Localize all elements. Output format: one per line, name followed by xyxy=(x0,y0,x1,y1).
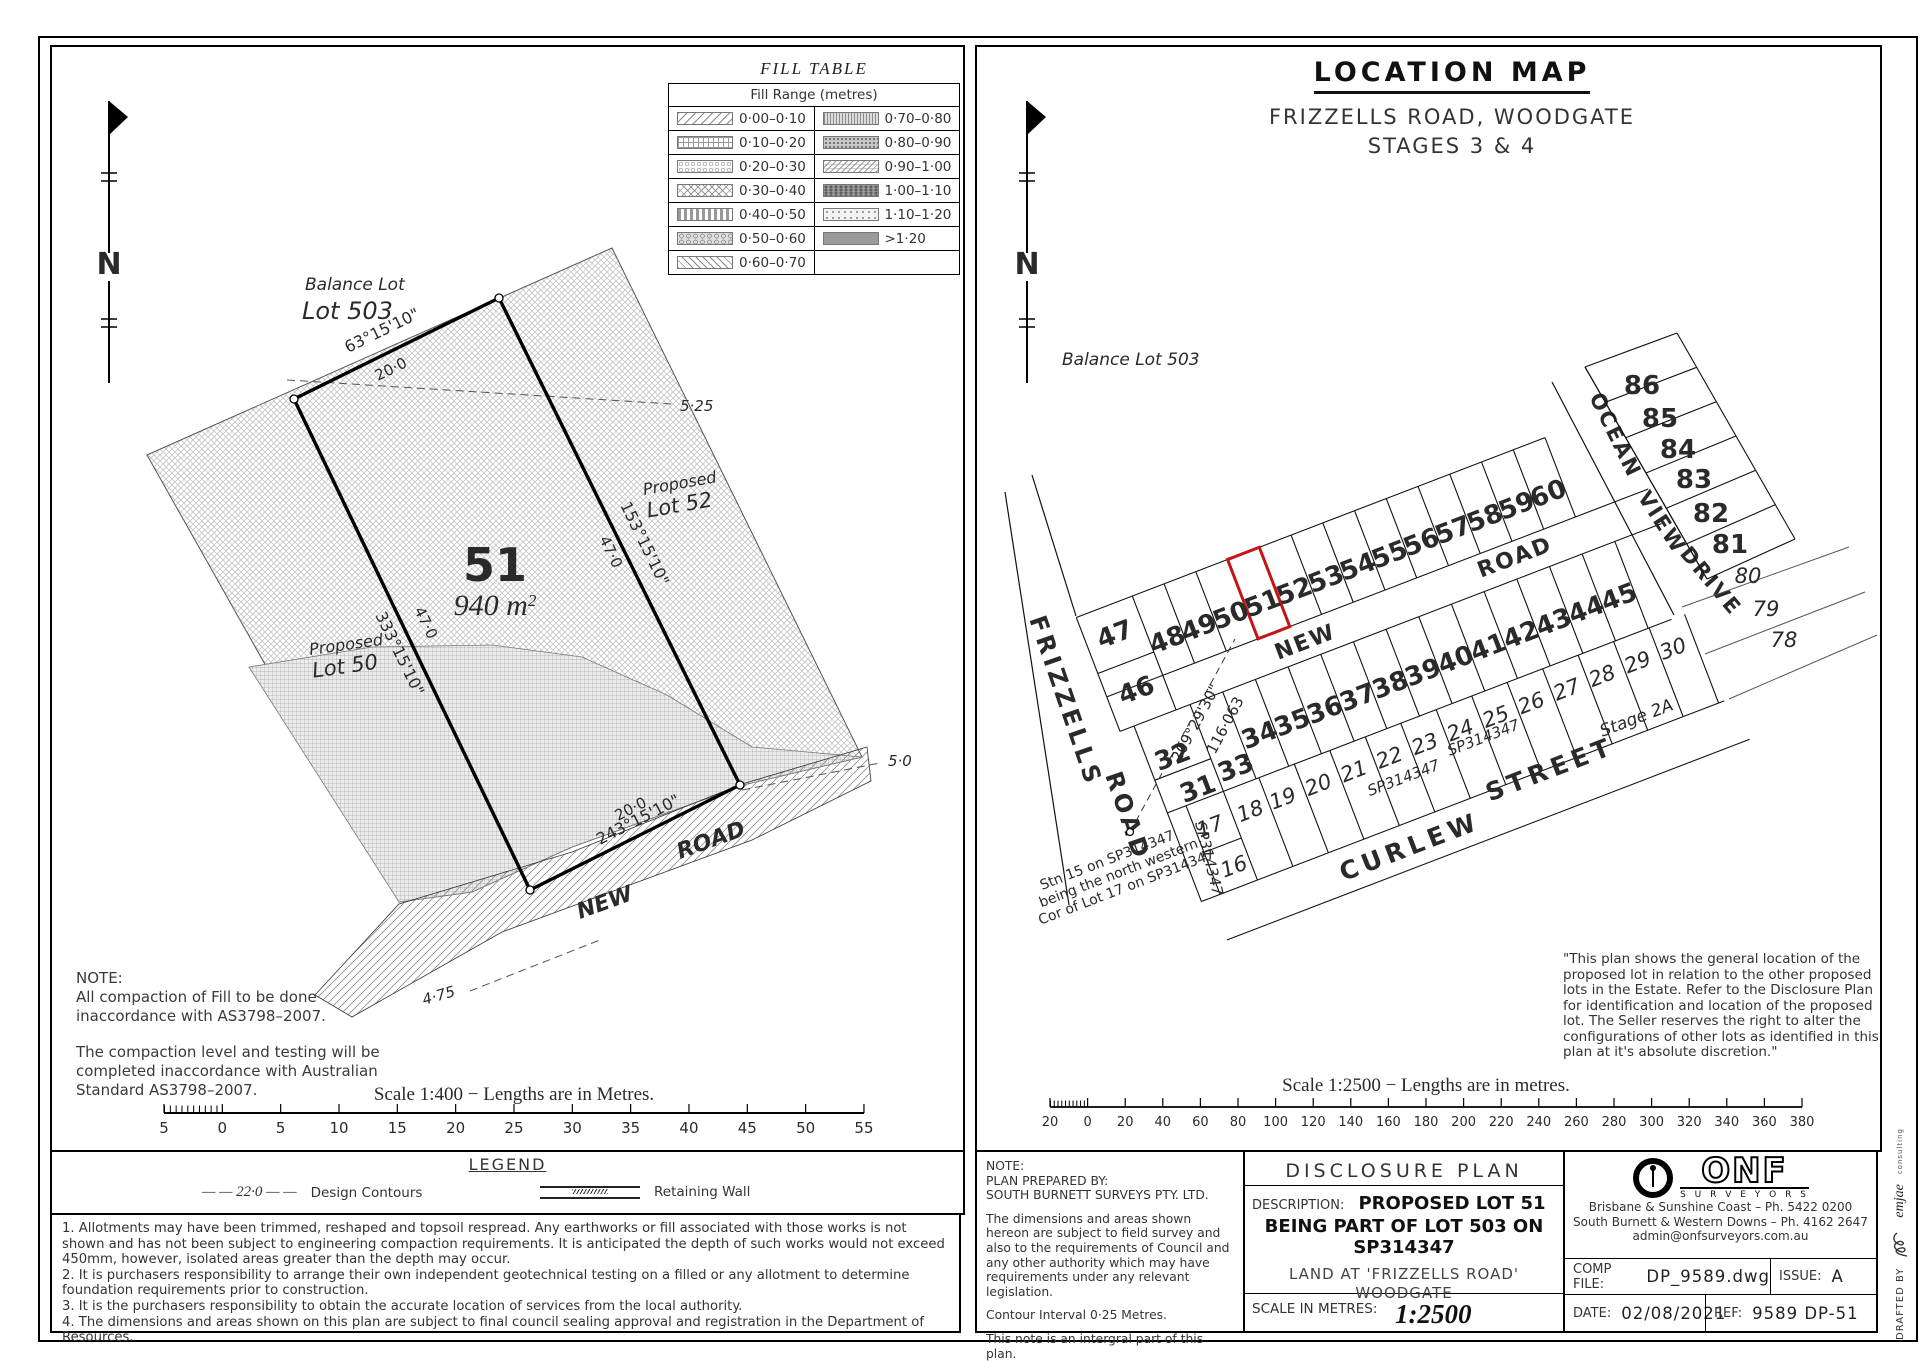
view-label: VIEW xyxy=(1633,487,1691,558)
svg-text:380: 380 xyxy=(1790,1115,1815,1130)
balance-lot-503-label: Balance Lot 503 xyxy=(1062,350,1200,370)
svg-text:35: 35 xyxy=(621,1119,640,1137)
north-arrow-flag xyxy=(1027,101,1046,135)
compaction-note: NOTE: All compaction of Fill to be done … xyxy=(76,969,380,1100)
svg-text:31: 31 xyxy=(1176,769,1221,810)
fill-table-row: 0·20–0·30 0·90–1·00 xyxy=(669,155,959,179)
scale-value: 1:2500 xyxy=(1395,1299,1472,1330)
svg-text:80: 80 xyxy=(1735,564,1762,588)
note-item: 3. It is the purchasers responsibility t… xyxy=(62,1299,949,1315)
fill-table-row: 0·00–0·10 0·70–0·80 xyxy=(669,107,959,131)
onf-name: ONF xyxy=(1701,1156,1788,1186)
legend-design-contours: — — 22·0 — — Design Contours xyxy=(202,1184,422,1201)
ocean-label: OCEAN xyxy=(1585,389,1647,482)
title-block-firm: ONF S U R V E Y O R S Brisbane & Sunshin… xyxy=(1565,1152,1876,1331)
scale-text-right: Scale 1:2500 − Lengths are in metres. xyxy=(1282,1075,1570,1096)
svg-text:140: 140 xyxy=(1338,1115,1363,1130)
north-letter: N xyxy=(96,247,121,282)
svg-text:220: 220 xyxy=(1489,1115,1514,1130)
land-at-line-1: LAND AT 'FRIZZELLS ROAD' xyxy=(1245,1265,1563,1283)
ref-label: REF: xyxy=(1714,1306,1742,1321)
svg-text:40: 40 xyxy=(679,1119,698,1137)
hatch-swatch-icon xyxy=(823,184,879,197)
emjae-consulting: consulting xyxy=(1896,1128,1904,1174)
street-label: STREET xyxy=(1482,732,1619,808)
drafted-by-margin: DRAFTED BY emjae consulting xyxy=(1886,1040,1914,1340)
location-map-subtitle-2: STAGES 3 & 4 xyxy=(1152,134,1752,158)
contour-label-525: 5·25 xyxy=(680,397,713,415)
scale-ticks-right: 2002040608010012014016018020022024026028… xyxy=(1042,1098,1815,1130)
svg-text:47: 47 xyxy=(1093,614,1138,655)
hatch-swatch-icon xyxy=(677,256,733,269)
svg-text:240: 240 xyxy=(1526,1115,1551,1130)
emjae-brand: emjae xyxy=(1892,1184,1908,1217)
location-map-header: LOCATION MAP FRIZZELLS ROAD, WOODGATE ST… xyxy=(1152,57,1752,158)
svg-text:120: 120 xyxy=(1301,1115,1326,1130)
svg-text:45: 45 xyxy=(738,1119,757,1137)
svg-text:280: 280 xyxy=(1602,1115,1627,1130)
hatch-swatch-icon xyxy=(823,112,879,125)
onf-logo-icon xyxy=(1632,1157,1674,1199)
onf-surveyors: S U R V E Y O R S xyxy=(1680,1187,1809,1200)
disclosure-quote: "This plan shows the general location of… xyxy=(1563,952,1883,1061)
contour-label-475: 4·75 xyxy=(420,982,457,1009)
svg-text:84: 84 xyxy=(1660,435,1696,465)
fill-table-row: 0·50–0·60 >1·20 xyxy=(669,227,959,251)
date-label: DATE: xyxy=(1573,1306,1611,1321)
svg-text:86: 86 xyxy=(1624,371,1660,401)
svg-text:5: 5 xyxy=(159,1119,169,1137)
comp-file-label: COMP FILE: xyxy=(1573,1262,1636,1292)
north-arrow-flag xyxy=(109,101,128,135)
hatch-swatch-icon xyxy=(823,160,879,173)
drafted-by-label: DRAFTED BY xyxy=(1895,1268,1906,1340)
hatch-swatch-icon xyxy=(823,136,879,149)
lot51-number: 51 xyxy=(463,538,527,592)
svg-text:0: 0 xyxy=(1083,1115,1091,1130)
firm-email: admin@onfsurveyors.com.au xyxy=(1565,1229,1876,1244)
title-block: NOTE: PLAN PREPARED BY: SOUTH BURNETT SU… xyxy=(975,1150,1878,1333)
fill-table: FILL TABLE Fill Range (metres) 0·00–0·10… xyxy=(668,59,960,275)
balance-lot-label-2: Lot 503 xyxy=(302,297,393,325)
svg-text:18: 18 xyxy=(1233,795,1267,827)
emjae-signature-icon xyxy=(1889,1228,1911,1258)
station-15-mark xyxy=(1127,829,1134,836)
svg-text:46: 46 xyxy=(1114,670,1159,711)
title-block-notes: NOTE: PLAN PREPARED BY: SOUTH BURNETT SU… xyxy=(977,1152,1245,1331)
fill-table-title: FILL TABLE xyxy=(668,59,960,79)
general-notes: 1. Allotments may have been trimmed, res… xyxy=(50,1213,961,1333)
ref-value: 9589 DP-51 xyxy=(1752,1304,1858,1323)
svg-text:50: 50 xyxy=(796,1119,815,1137)
new-road-label-1: NEW xyxy=(1271,619,1339,665)
svg-text:60: 60 xyxy=(1192,1115,1209,1130)
svg-text:360: 360 xyxy=(1752,1115,1777,1130)
hatch-swatch-icon xyxy=(677,184,733,197)
hatch-swatch-icon xyxy=(677,208,733,221)
issue-label: ISSUE: xyxy=(1779,1269,1821,1284)
svg-text:200: 200 xyxy=(1451,1115,1476,1130)
contour-label-50: 5·0 xyxy=(888,752,912,770)
svg-text:340: 340 xyxy=(1714,1115,1739,1130)
svg-text:81: 81 xyxy=(1712,530,1748,560)
svg-text:82: 82 xyxy=(1693,499,1729,529)
firm-address-1: Brisbane & Sunshine Coast – Ph. 5422 020… xyxy=(1565,1200,1876,1215)
svg-text:5: 5 xyxy=(276,1119,286,1137)
svg-text:260: 260 xyxy=(1564,1115,1589,1130)
lot51-area: 940 m2 xyxy=(454,589,537,622)
hatch-swatch-icon xyxy=(823,208,879,221)
svg-text:80: 80 xyxy=(1230,1115,1247,1130)
fill-table-row: 0·10–0·20 0·80–0·90 xyxy=(669,131,959,155)
svg-text:100: 100 xyxy=(1263,1115,1288,1130)
svg-text:25: 25 xyxy=(504,1119,523,1137)
svg-text:40: 40 xyxy=(1155,1115,1172,1130)
svg-text:20: 20 xyxy=(1117,1115,1134,1130)
svg-text:30: 30 xyxy=(563,1119,582,1137)
contour-475-line xyxy=(470,940,600,991)
legend-title: LEGEND xyxy=(52,1155,963,1174)
description-label: DESCRIPTION: xyxy=(1252,1198,1344,1213)
svg-text:10: 10 xyxy=(329,1119,348,1137)
description-line-2: BEING PART OF LOT 503 ON SP314347 xyxy=(1245,1216,1563,1258)
hatch-swatch-icon xyxy=(677,160,733,173)
scale-label: SCALE IN METRES: xyxy=(1252,1301,1377,1317)
svg-text:79: 79 xyxy=(1753,597,1780,621)
hatch-swatch-icon xyxy=(677,112,733,125)
svg-text:15: 15 xyxy=(388,1119,407,1137)
balance-lot-label-1: Balance Lot xyxy=(305,275,406,295)
note-item: 1. Allotments may have been trimmed, res… xyxy=(62,1221,949,1268)
hatch-swatch-icon xyxy=(677,232,733,245)
north-letter: N xyxy=(1014,247,1039,282)
lot-plan-panel: 5·25 5·0 4·75 63°15'10" 20·0 153°15'10" … xyxy=(50,45,965,1152)
retaining-wall-icon xyxy=(540,1186,640,1199)
contour-symbol: — — 22·0 — — xyxy=(202,1184,297,1201)
fill-table-row: 0·40–0·50 1·10–1·20 xyxy=(669,203,959,227)
comp-file-value: DP_9589.dwg xyxy=(1646,1267,1770,1286)
issue-value: A xyxy=(1831,1267,1843,1286)
legend-retaining-wall: Retaining Wall xyxy=(540,1184,750,1200)
fill-table-row: 0·30–0·40 1·00–1·10 xyxy=(669,179,959,203)
svg-text:180: 180 xyxy=(1414,1115,1439,1130)
svg-text:20: 20 xyxy=(446,1119,465,1137)
location-map-title: LOCATION MAP xyxy=(1314,57,1591,94)
frizzells-label: FRIZZELLS xyxy=(1023,612,1108,790)
svg-text:85: 85 xyxy=(1642,404,1678,434)
firm-address-2: South Burnett & Western Downs – Ph. 4162… xyxy=(1565,1215,1876,1230)
hatch-swatch-icon xyxy=(823,232,879,245)
fill-table-header: Fill Range (metres) xyxy=(669,84,959,107)
svg-text:0: 0 xyxy=(218,1119,228,1137)
location-map-subtitle-1: FRIZZELLS ROAD, WOODGATE xyxy=(1152,105,1752,129)
svg-text:160: 160 xyxy=(1376,1115,1401,1130)
note-item: 2. It is purchasers responsibility to ar… xyxy=(62,1268,949,1299)
svg-text:300: 300 xyxy=(1639,1115,1664,1130)
legend: LEGEND — — 22·0 — — Design Contours Reta… xyxy=(50,1150,965,1215)
svg-text:55: 55 xyxy=(854,1119,873,1137)
scale-ticks-left: 50510152025303540455055 xyxy=(159,1104,873,1137)
curlew-label: CURLEW xyxy=(1335,807,1484,887)
note-item: 4. The dimensions and areas shown on thi… xyxy=(62,1315,949,1346)
north-arrow: N xyxy=(1014,101,1046,383)
svg-text:20: 20 xyxy=(1042,1115,1059,1130)
hatch-swatch-icon xyxy=(677,136,733,149)
svg-text:78: 78 xyxy=(1771,628,1798,652)
svg-text:83: 83 xyxy=(1676,465,1712,495)
disclosure-plan-title: DISCLOSURE PLAN xyxy=(1245,1152,1563,1186)
svg-text:320: 320 xyxy=(1677,1115,1702,1130)
fill-table-row: 0·60–0·70 xyxy=(669,251,959,274)
north-arrow: N xyxy=(96,101,128,383)
title-block-description: DISCLOSURE PLAN DESCRIPTION: PROPOSED LO… xyxy=(1245,1152,1565,1331)
scale-text-left: Scale 1:400 − Lengths are in Metres. xyxy=(374,1084,654,1105)
